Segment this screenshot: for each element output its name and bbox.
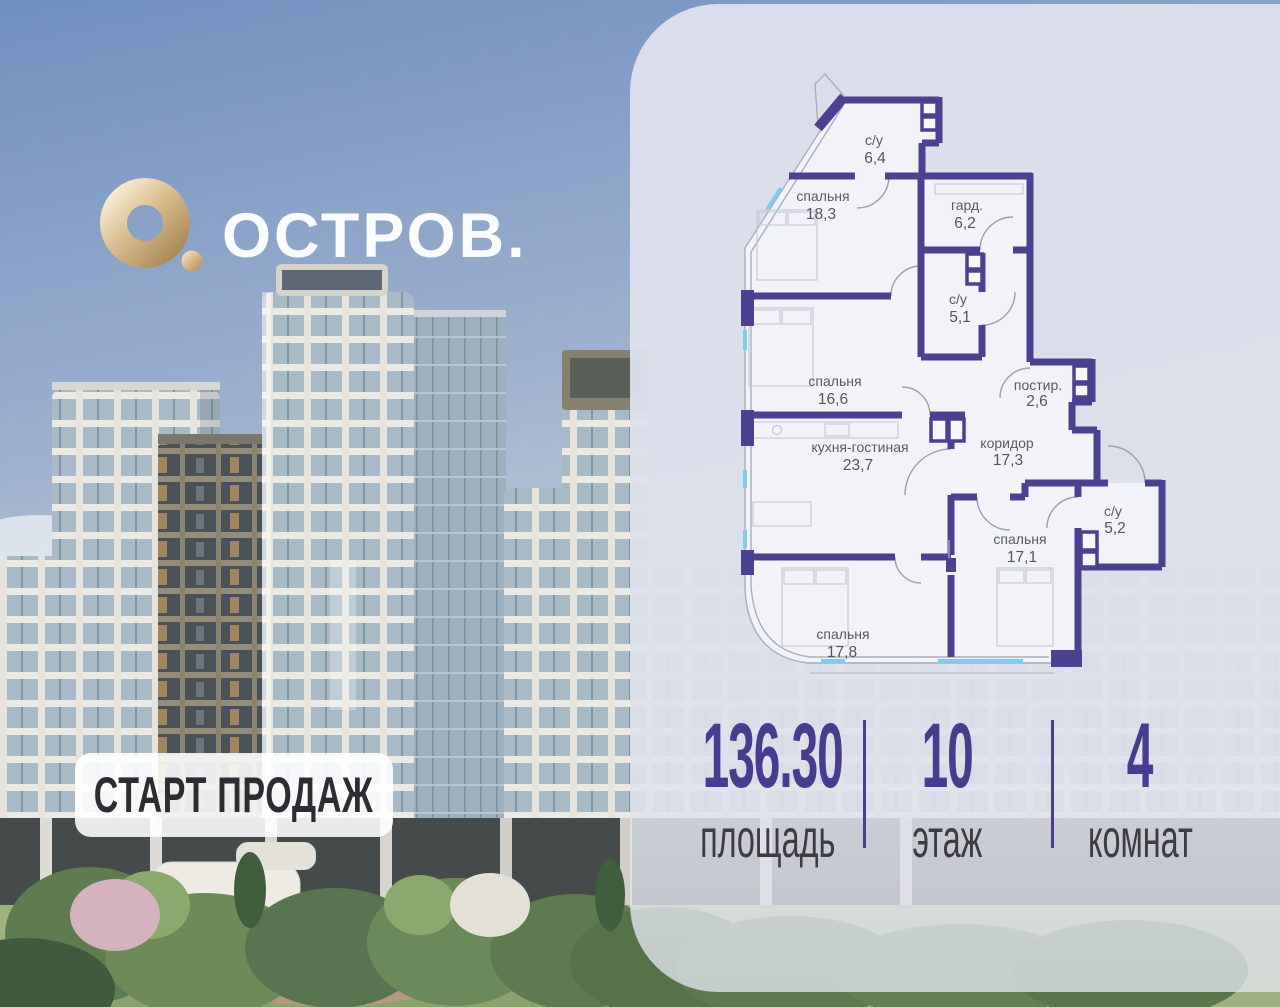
room-label: спальня (796, 188, 849, 204)
sales-badge-label: СТАРТ ПРОДАЖ (94, 766, 374, 824)
brand-ring-icon (84, 160, 214, 290)
brand-logo: ОСТРОВ. (84, 160, 214, 290)
stat-rooms: 4 комнат (1010, 710, 1270, 866)
room-area: 17,1 (1007, 549, 1037, 566)
brand-name: ОСТРОВ. (222, 200, 528, 272)
room-label: гард. (951, 197, 983, 213)
room-area: 16,6 (818, 391, 848, 408)
room-area: 5,1 (949, 309, 971, 326)
room-label: с/у (1104, 503, 1122, 519)
room-label: спальня (816, 626, 869, 642)
room-label: спальня (808, 373, 861, 389)
sales-badge: СТАРТ ПРОДАЖ (75, 753, 393, 837)
room-area: 6,4 (864, 150, 886, 167)
room-label: спальня (993, 531, 1046, 547)
promo-poster: ОСТРОВ. СТАРТ ПРОДАЖ (0, 0, 1280, 1007)
room-area: 18,3 (806, 206, 836, 223)
room-label: кухня-гостиная (811, 439, 908, 455)
room-area: 23,7 (843, 457, 873, 474)
stat-rooms-value: 4 (1127, 710, 1153, 802)
room-area: 17,3 (993, 452, 1023, 469)
room-area: 5,2 (1104, 520, 1126, 537)
room-label: коридор (980, 435, 1034, 451)
stat-rooms-label: комнат (1010, 812, 1270, 866)
apartment-panel: с/у 6,4 спальня 18,3 гард. 6,2 с/у 5,1 с… (630, 4, 1280, 992)
room-label: постир. (1014, 377, 1062, 393)
room-area: 2,6 (1026, 393, 1048, 410)
room-label: с/у (949, 291, 967, 307)
stat-floor-value: 10 (921, 710, 972, 802)
floor-plan: с/у 6,4 спальня 18,3 гард. 6,2 с/у 5,1 с… (725, 50, 1190, 710)
room-area: 17,8 (827, 644, 857, 661)
room-area: 6,2 (954, 215, 976, 232)
room-label: с/у (865, 132, 883, 148)
